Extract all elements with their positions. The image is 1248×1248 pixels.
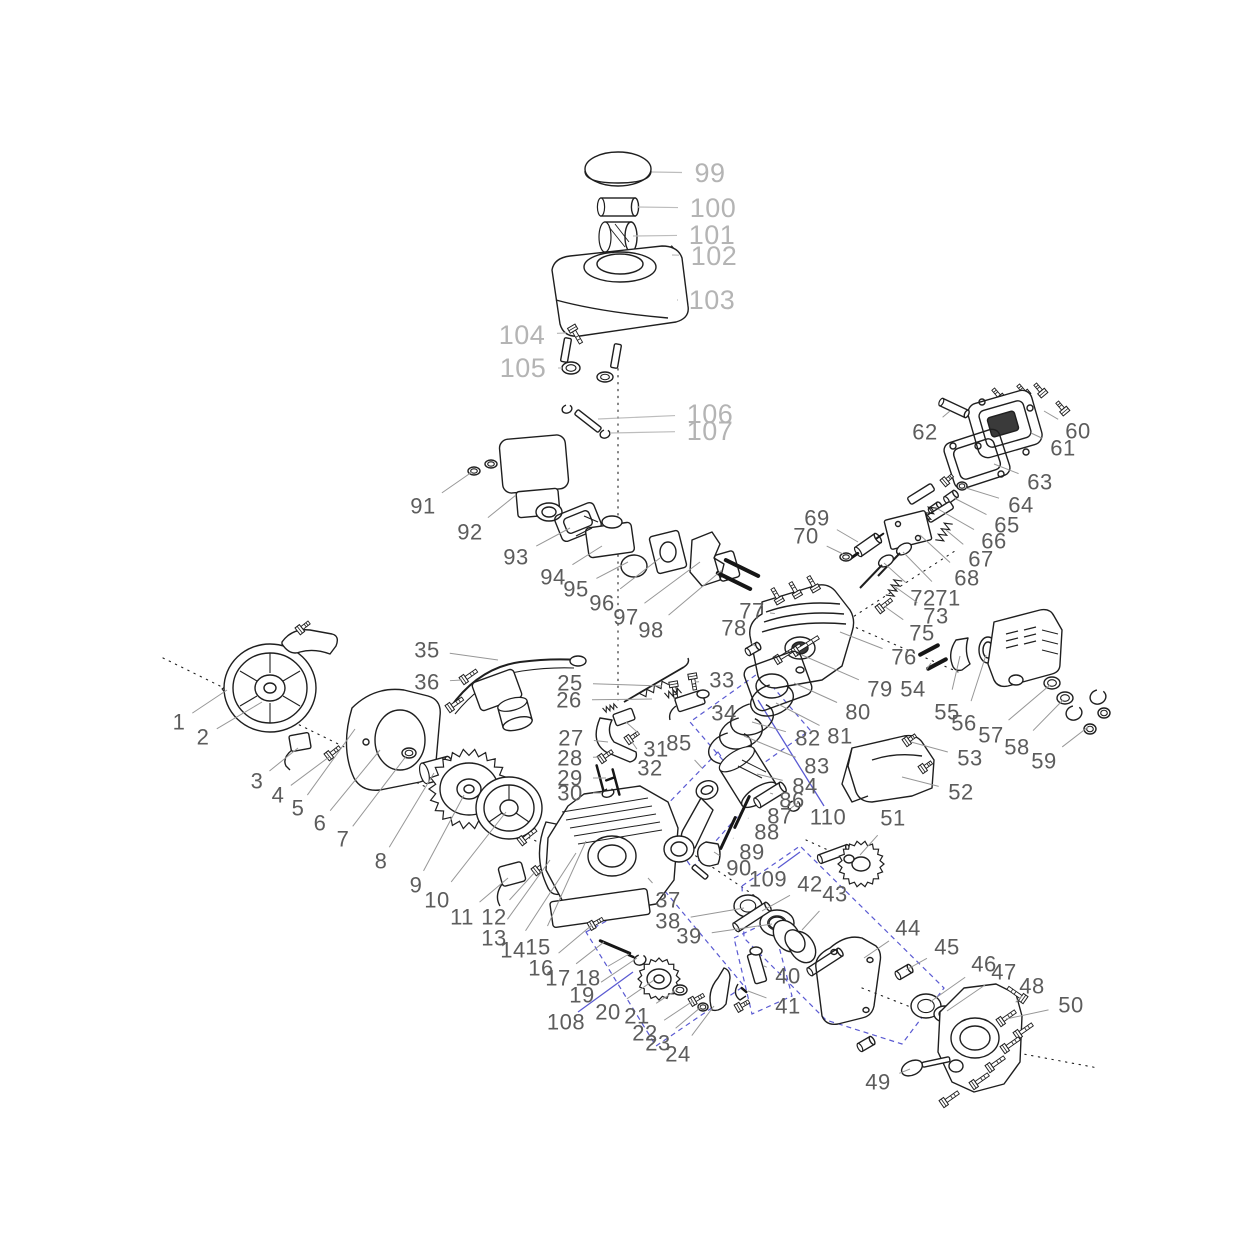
part-shape [570, 656, 586, 666]
part-shape [697, 690, 709, 698]
part-label-57: 57 [978, 723, 1003, 748]
parts-diagram: 1234567891011121314151617181920212223242… [0, 0, 1248, 1248]
leader-line-65 [954, 498, 987, 515]
leader-line-58 [1033, 700, 1063, 731]
part-label-49: 49 [865, 1070, 890, 1095]
part-label-26: 26 [556, 688, 581, 713]
leader-line-106 [598, 416, 675, 419]
part-shape [560, 338, 571, 363]
part-label-81: 81 [827, 724, 852, 749]
spring-shape [639, 679, 668, 698]
part-shape [497, 884, 502, 906]
alignment-dotted-line [1018, 1053, 1098, 1068]
part-shape [694, 778, 721, 802]
part-shape [959, 484, 965, 488]
part-label-108: 108 [547, 1010, 585, 1035]
gear-shape [638, 958, 680, 1000]
leader-line-62 [943, 411, 950, 417]
part-label-97: 97 [613, 605, 638, 630]
part-label-85: 85 [666, 731, 691, 756]
part-shape [405, 750, 413, 756]
leader-line-77 [770, 613, 775, 614]
leader-line-17 [576, 942, 604, 964]
part-label-103: 103 [689, 285, 736, 315]
part-shape [843, 555, 850, 559]
part-shape [950, 443, 956, 449]
part-label-4: 4 [272, 783, 285, 808]
part-shape [1088, 688, 1108, 707]
part-shape [867, 958, 873, 963]
part-label-107: 107 [687, 416, 734, 446]
part-shape [613, 708, 636, 726]
part-label-54: 54 [900, 677, 925, 702]
leader-line-18 [608, 954, 629, 966]
part-label-82: 82 [795, 726, 820, 751]
leader-line-67 [946, 530, 963, 544]
part-shape [610, 344, 621, 369]
part-shape [285, 750, 292, 770]
leader-line-100 [637, 207, 678, 208]
spring-shape [935, 520, 952, 543]
bolt-shape [734, 998, 751, 1013]
part-label-105: 105 [500, 353, 547, 383]
part-label-62: 62 [912, 420, 937, 445]
leader-line-43 [802, 911, 819, 930]
part-shape [710, 968, 730, 1010]
part-shape [629, 955, 634, 957]
part-shape [863, 1008, 869, 1013]
part-label-100: 100 [690, 193, 737, 223]
part-shape [1061, 695, 1070, 702]
spring-shape [603, 703, 618, 712]
leader-line-66 [938, 509, 974, 530]
part-label-48: 48 [1019, 974, 1044, 999]
part-label-92: 92 [457, 520, 482, 545]
part-label-44: 44 [895, 916, 920, 941]
part-label-5: 5 [292, 796, 305, 821]
part-label-47: 47 [991, 960, 1016, 985]
part-label-17: 17 [545, 966, 570, 991]
part-shape [566, 365, 576, 372]
part-label-6: 6 [314, 811, 327, 836]
leader-line-101 [633, 235, 677, 236]
leader-line-4 [291, 757, 329, 785]
part-shape [597, 254, 643, 274]
bolt-shape [1054, 399, 1070, 416]
leader-line-70 [827, 546, 843, 554]
leader-line-107 [610, 432, 675, 433]
part-shape [988, 610, 1062, 687]
part-shape [750, 947, 762, 955]
part-label-110: 110 [810, 805, 847, 830]
part-label-78: 78 [721, 616, 746, 641]
bolt-shape [1032, 381, 1048, 398]
part-label-80: 80 [845, 700, 870, 725]
part-shape [684, 658, 689, 667]
part-shape [844, 855, 854, 863]
part-label-102: 102 [691, 241, 738, 271]
bolt-shape [445, 695, 465, 713]
part-label-41: 41 [775, 994, 800, 1019]
alignment-dotted-line [806, 840, 828, 850]
part-label-50: 50 [1058, 993, 1083, 1018]
part-label-93: 93 [503, 545, 528, 570]
part-shape [621, 555, 647, 577]
part-label-91: 91 [410, 494, 435, 519]
part-shape [1023, 449, 1029, 455]
part-label-52: 52 [948, 780, 973, 805]
part-label-11: 11 [450, 905, 474, 930]
part-label-95: 95 [563, 577, 588, 602]
part-label-43: 43 [822, 882, 847, 907]
leader-line-64 [966, 488, 999, 498]
part-shape [747, 952, 767, 984]
part-shape [601, 374, 610, 380]
leader-line-44 [864, 941, 889, 958]
part-shape [691, 864, 708, 879]
part-shape [664, 836, 694, 862]
part-label-96: 96 [589, 591, 614, 616]
leader-line-81 [776, 703, 820, 725]
part-label-34: 34 [711, 701, 736, 726]
leader-line-92 [488, 495, 516, 518]
leader-line-80 [794, 683, 837, 703]
part-shape [536, 503, 562, 521]
part-label-20: 20 [595, 1000, 620, 1025]
part-shape [899, 1057, 925, 1079]
leader-line-82 [752, 722, 786, 732]
part-shape [894, 964, 914, 981]
leader-line-16 [559, 925, 592, 953]
leader-line-75 [884, 606, 903, 620]
part-label-53: 53 [957, 746, 982, 771]
part-shape [920, 645, 938, 654]
part-shape [951, 638, 970, 670]
part-label-7: 7 [337, 827, 350, 852]
part-shape [918, 999, 935, 1012]
part-label-39: 39 [676, 924, 701, 949]
leader-line-36 [450, 680, 462, 681]
leader-line-35 [450, 653, 498, 660]
part-label-42: 42 [797, 872, 822, 897]
part-shape [816, 937, 881, 1024]
part-label-10: 10 [424, 888, 449, 913]
part-label-98: 98 [638, 618, 663, 643]
part-shape [602, 516, 622, 528]
part-label-8: 8 [375, 849, 388, 874]
part-shape [690, 532, 724, 586]
part-label-70: 70 [793, 524, 818, 549]
part-label-35: 35 [414, 638, 439, 663]
leader-line-19 [601, 958, 637, 982]
part-label-19: 19 [569, 983, 594, 1008]
leader-line-71 [903, 552, 932, 582]
part-shape [600, 941, 629, 954]
part-label-94: 94 [540, 565, 565, 590]
part-label-24: 24 [665, 1042, 690, 1067]
leader-line-3 [269, 748, 298, 771]
part-shape [856, 1036, 876, 1053]
part-label-33: 33 [709, 668, 734, 693]
part-shape [282, 630, 337, 654]
part-label-58: 58 [1004, 735, 1029, 760]
part-label-109: 109 [749, 867, 787, 892]
part-label-99: 99 [694, 158, 725, 188]
part-label-61: 61 [1050, 436, 1075, 461]
leader-line-59 [1062, 727, 1088, 747]
leader-line-69 [837, 530, 858, 542]
leader-line-31 [626, 722, 639, 734]
part-shape [1064, 704, 1084, 723]
part-shape [700, 1005, 706, 1009]
part-label-40: 40 [775, 964, 800, 989]
part-shape [606, 778, 614, 781]
part-label-104: 104 [499, 320, 546, 350]
part-shape [574, 409, 601, 432]
part-shape [264, 683, 276, 693]
part-shape [289, 732, 311, 751]
leader-line-41 [748, 991, 766, 998]
part-label-76: 76 [891, 645, 916, 670]
part-label-36: 36 [414, 670, 439, 695]
part-label-32: 32 [637, 756, 662, 781]
part-label-56: 56 [951, 711, 976, 736]
leader-line-57 [1009, 685, 1050, 720]
leader-line-10 [451, 812, 506, 882]
part-label-75: 75 [909, 621, 934, 646]
leader-line-93 [536, 528, 570, 546]
leader-line-85 [695, 760, 702, 768]
part-label-51: 51 [880, 806, 905, 831]
leader-line-40 [764, 966, 767, 967]
leader-line-60 [1044, 411, 1058, 419]
part-label-14: 14 [500, 938, 525, 963]
leader-line-99 [652, 172, 682, 173]
part-label-3: 3 [251, 769, 264, 794]
part-label-30: 30 [557, 781, 582, 806]
leader-line-56 [971, 655, 986, 701]
part-shape [561, 404, 573, 415]
part-shape [1009, 675, 1023, 685]
part-shape [488, 462, 495, 466]
part-label-63: 63 [1027, 470, 1052, 495]
part-shape [597, 198, 638, 216]
leader-line-32 [632, 742, 637, 749]
part-label-9: 9 [410, 873, 423, 898]
part-shape [1101, 710, 1108, 716]
part-label-59: 59 [1031, 749, 1056, 774]
part-shape [649, 530, 687, 574]
part-shape [464, 785, 474, 793]
part-shape [670, 706, 676, 720]
diagram-svg: 1234567891011121314151617181920212223242… [0, 0, 1248, 1248]
part-shape [726, 560, 758, 576]
part-shape [735, 984, 746, 1000]
part-label-2: 2 [197, 725, 210, 750]
leader-line-1 [192, 690, 227, 713]
part-label-1: 1 [173, 710, 186, 735]
part-label-79: 79 [867, 677, 892, 702]
part-shape [599, 222, 637, 252]
leader-line-26 [592, 699, 652, 700]
spring-shape [886, 577, 902, 598]
leader-line-68 [920, 535, 950, 562]
bolt-shape [939, 1089, 961, 1108]
part-shape [499, 434, 569, 494]
leader-line-91 [442, 472, 472, 493]
part-shape [938, 398, 970, 419]
leader-line-11 [480, 878, 508, 902]
part-shape [907, 483, 935, 505]
part-label-45: 45 [934, 935, 959, 960]
